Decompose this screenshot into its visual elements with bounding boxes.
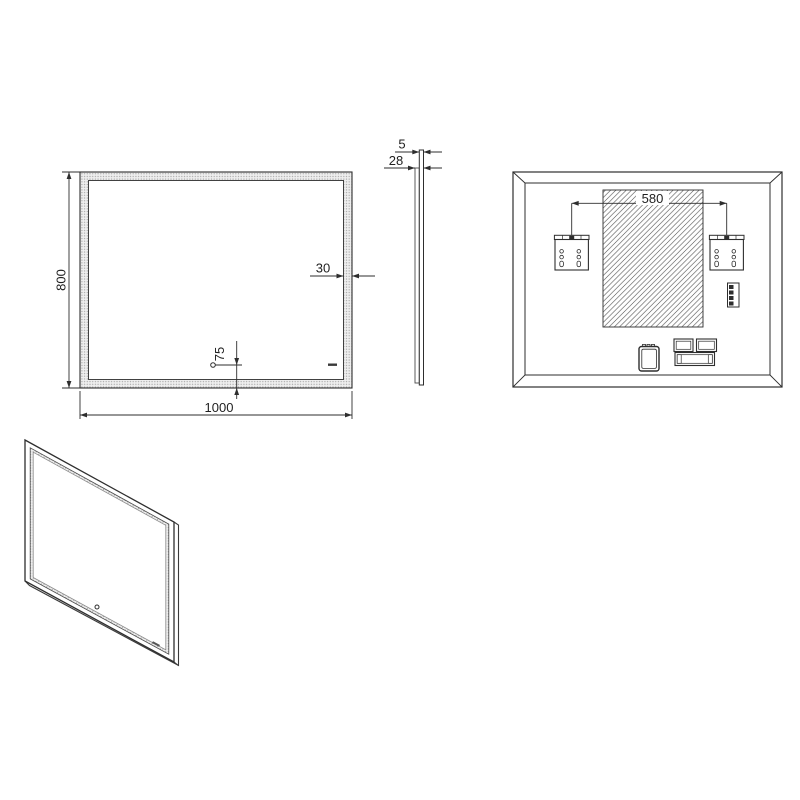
arrow-right-icon xyxy=(408,166,415,171)
arrow-left-icon xyxy=(352,274,359,279)
dim-depth-28: 28 xyxy=(384,153,442,170)
junction-box xyxy=(639,344,659,371)
brand-logo-mark xyxy=(328,364,337,366)
led-driver-small-2 xyxy=(697,339,717,352)
dim-width-1000: 1000 xyxy=(80,391,352,419)
mounting-bracket-right xyxy=(709,235,744,270)
mounting-bracket-left xyxy=(554,235,589,270)
led-driver-small-1 xyxy=(674,339,693,352)
dim-glass-label: 5 xyxy=(398,137,405,152)
dim-sensor-label: 75 xyxy=(212,347,227,361)
dim-width-label: 1000 xyxy=(205,400,234,415)
front-view: 800 1000 30 75 xyxy=(54,172,376,419)
anti-fog-heater-pad xyxy=(603,190,703,327)
arrow-up-icon xyxy=(234,388,239,395)
arrow-left-icon xyxy=(424,150,431,155)
touch-sensor-dot xyxy=(211,363,216,368)
touch-sensor-dot xyxy=(95,605,99,609)
dim-depth-label: 28 xyxy=(389,153,403,168)
arrow-left-icon xyxy=(80,413,87,418)
led-driver-wide xyxy=(675,353,715,366)
back-profile xyxy=(415,168,419,383)
perspective-view xyxy=(25,440,179,666)
arrow-up-icon xyxy=(67,172,72,179)
arrow-right-icon xyxy=(345,413,352,418)
dim-glass-5: 5 xyxy=(395,137,442,155)
dim-height-label: 800 xyxy=(54,269,69,291)
drawing-canvas: 800 1000 30 75 xyxy=(0,0,800,800)
arrow-down-icon xyxy=(67,381,72,388)
dim-frame-label: 30 xyxy=(316,261,330,276)
side-view: 5 28 xyxy=(384,137,442,386)
terminal-block xyxy=(728,283,740,307)
arrow-left-icon xyxy=(424,166,431,171)
arrow-right-icon xyxy=(412,150,419,155)
glass-panel xyxy=(419,150,423,385)
dim-brackets-label: 580 xyxy=(642,191,664,206)
technical-drawing: 800 1000 30 75 xyxy=(0,0,800,800)
dim-height-800: 800 xyxy=(54,172,81,388)
back-view: 580 xyxy=(513,172,782,387)
